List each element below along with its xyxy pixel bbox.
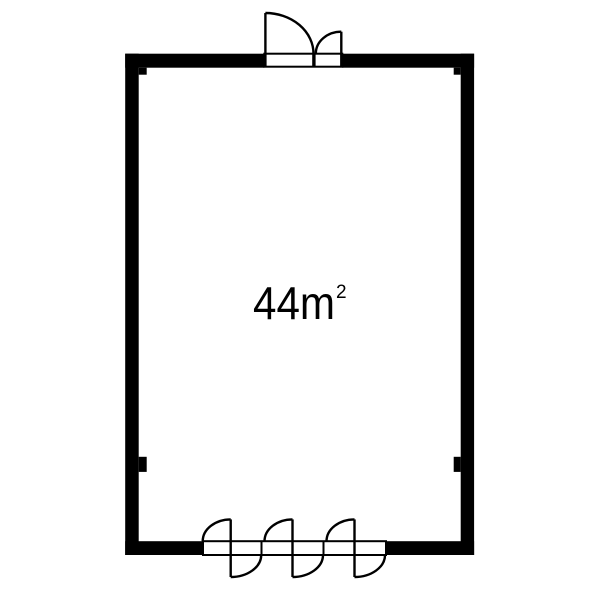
- svg-text:44m: 44m: [253, 277, 335, 329]
- svg-text:2: 2: [336, 282, 347, 303]
